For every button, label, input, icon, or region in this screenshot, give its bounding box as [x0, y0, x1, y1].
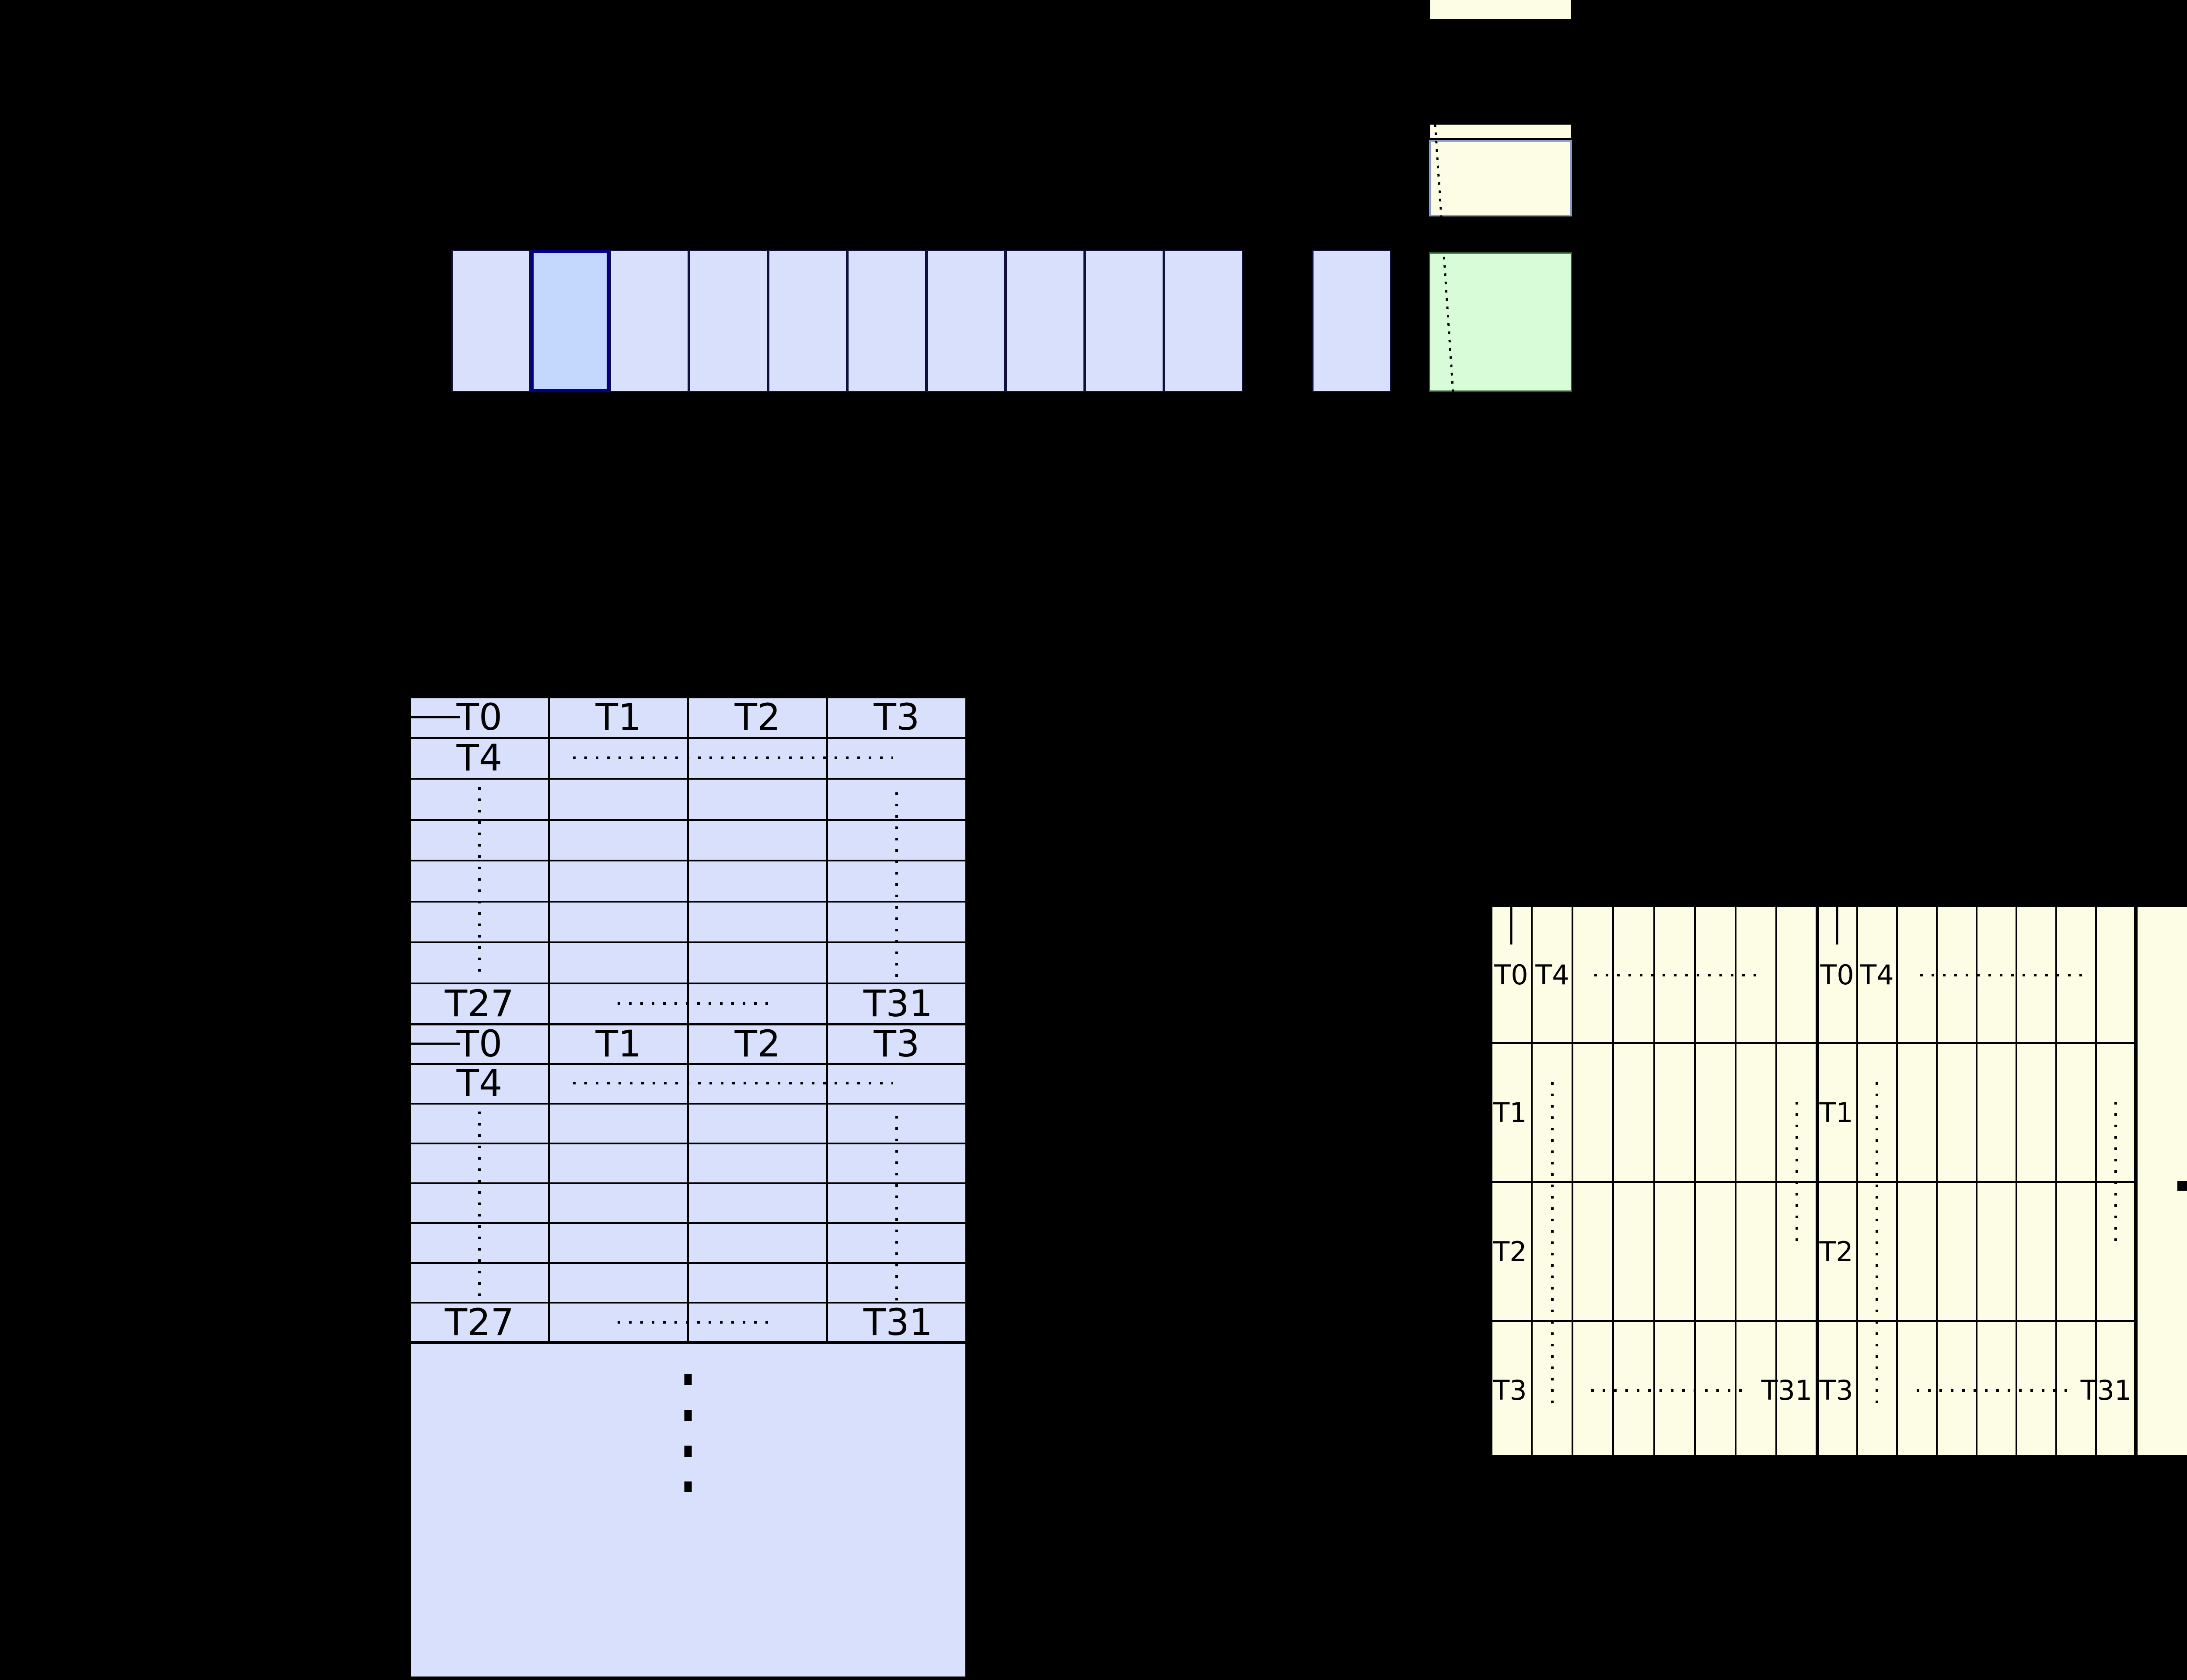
- thread-label: T31: [863, 985, 933, 1022]
- green-box: [1429, 252, 1572, 392]
- thread-label: T2: [1493, 1238, 1527, 1265]
- thread-label: T31: [2081, 1377, 2132, 1404]
- thread-label: T3: [1819, 1377, 1853, 1404]
- thread-cell: [610, 250, 689, 392]
- thread-cell: [1164, 250, 1243, 392]
- thread-label: T3: [874, 1025, 920, 1062]
- thread-cell-highlighted: [531, 250, 610, 392]
- thread-label: T1: [596, 699, 642, 735]
- thread-label: T31: [863, 1304, 933, 1341]
- diagram-canvas: T0 T1 T2 T3 T4 T27 T31 T0 T1 T2 T3 T4 T2…: [0, 0, 2187, 1680]
- thread-label: T0: [1820, 962, 1854, 989]
- thread-label: T1: [1493, 1099, 1527, 1126]
- thread-label: T4: [1860, 962, 1894, 989]
- detached-thread-cell: [1312, 250, 1391, 392]
- yellow-box-slate: [1429, 140, 1572, 216]
- thread-cell: [1085, 250, 1164, 392]
- thread-label: T0: [1494, 962, 1528, 989]
- thread-label: T1: [1819, 1099, 1853, 1126]
- thread-cell: [451, 250, 531, 392]
- thread-label: T1: [596, 1025, 642, 1062]
- yellow-box-strip: [1429, 123, 1572, 139]
- thread-label: T4: [457, 1065, 503, 1101]
- thread-label: T2: [735, 1025, 781, 1062]
- thread-label: T0: [457, 699, 503, 735]
- thread-label: T3: [874, 699, 920, 735]
- thread-label: T27: [445, 1304, 514, 1341]
- yellow-box-top: [1429, 0, 1572, 20]
- thread-label: T4: [457, 739, 503, 776]
- thread-label: T0: [457, 1025, 503, 1062]
- thread-label: T2: [1819, 1238, 1853, 1265]
- thread-label: T2: [735, 699, 781, 735]
- thread-label: T31: [1761, 1377, 1813, 1404]
- thread-cell: [926, 250, 1006, 392]
- left-table-background: [410, 697, 967, 1678]
- thread-cell: [689, 250, 768, 392]
- thread-label: T3: [1493, 1377, 1527, 1404]
- thread-cell: [1006, 250, 1085, 392]
- thread-label: T4: [1535, 962, 1569, 989]
- thread-cell: [847, 250, 926, 392]
- thread-cell: [768, 250, 847, 392]
- thread-label: T27: [445, 985, 514, 1022]
